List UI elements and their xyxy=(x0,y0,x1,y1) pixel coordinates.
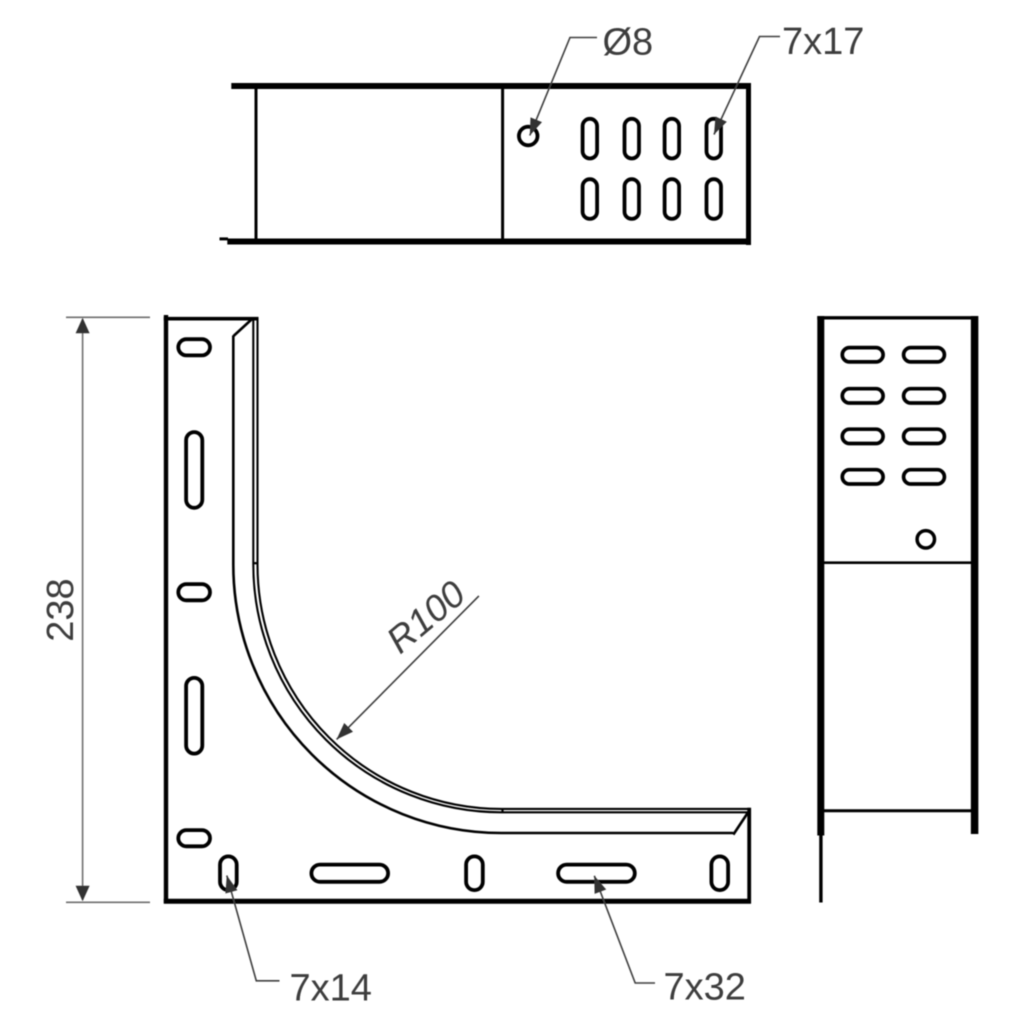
svg-text:7x14: 7x14 xyxy=(290,968,372,1010)
svg-text:7x32: 7x32 xyxy=(664,967,746,1009)
svg-text:Ø8: Ø8 xyxy=(603,22,654,64)
svg-text:7x17: 7x17 xyxy=(782,21,864,63)
svg-text:238: 238 xyxy=(40,578,82,641)
